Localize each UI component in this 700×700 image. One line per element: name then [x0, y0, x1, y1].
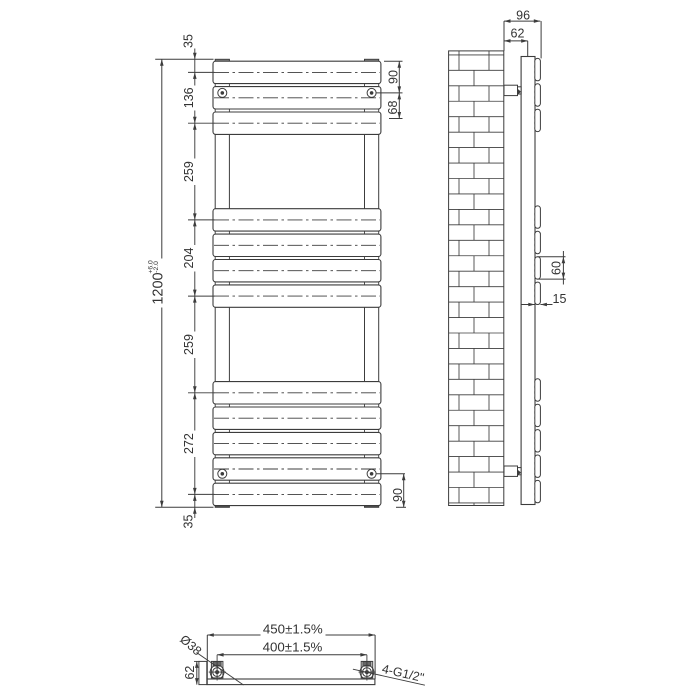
svg-text:60: 60: [550, 261, 564, 275]
svg-text:259: 259: [182, 161, 196, 182]
svg-text:96: 96: [516, 8, 530, 22]
svg-text:259: 259: [182, 334, 196, 355]
svg-text:35: 35: [182, 515, 196, 529]
svg-text:68: 68: [386, 101, 400, 115]
svg-text:62: 62: [183, 666, 197, 680]
svg-text:90: 90: [387, 70, 401, 84]
svg-text:15: 15: [553, 292, 567, 306]
svg-text:35: 35: [182, 34, 196, 48]
svg-text:-2.0: -2.0: [153, 261, 160, 273]
svg-text:90: 90: [391, 488, 405, 502]
svg-text:1200: 1200: [150, 272, 166, 304]
svg-text:400±1.5%: 400±1.5%: [263, 640, 323, 655]
svg-text:62: 62: [511, 26, 525, 40]
svg-text:204: 204: [182, 248, 196, 269]
svg-text:450±1.5%: 450±1.5%: [263, 622, 323, 637]
svg-text:272: 272: [182, 433, 196, 454]
svg-text:136: 136: [182, 87, 196, 108]
